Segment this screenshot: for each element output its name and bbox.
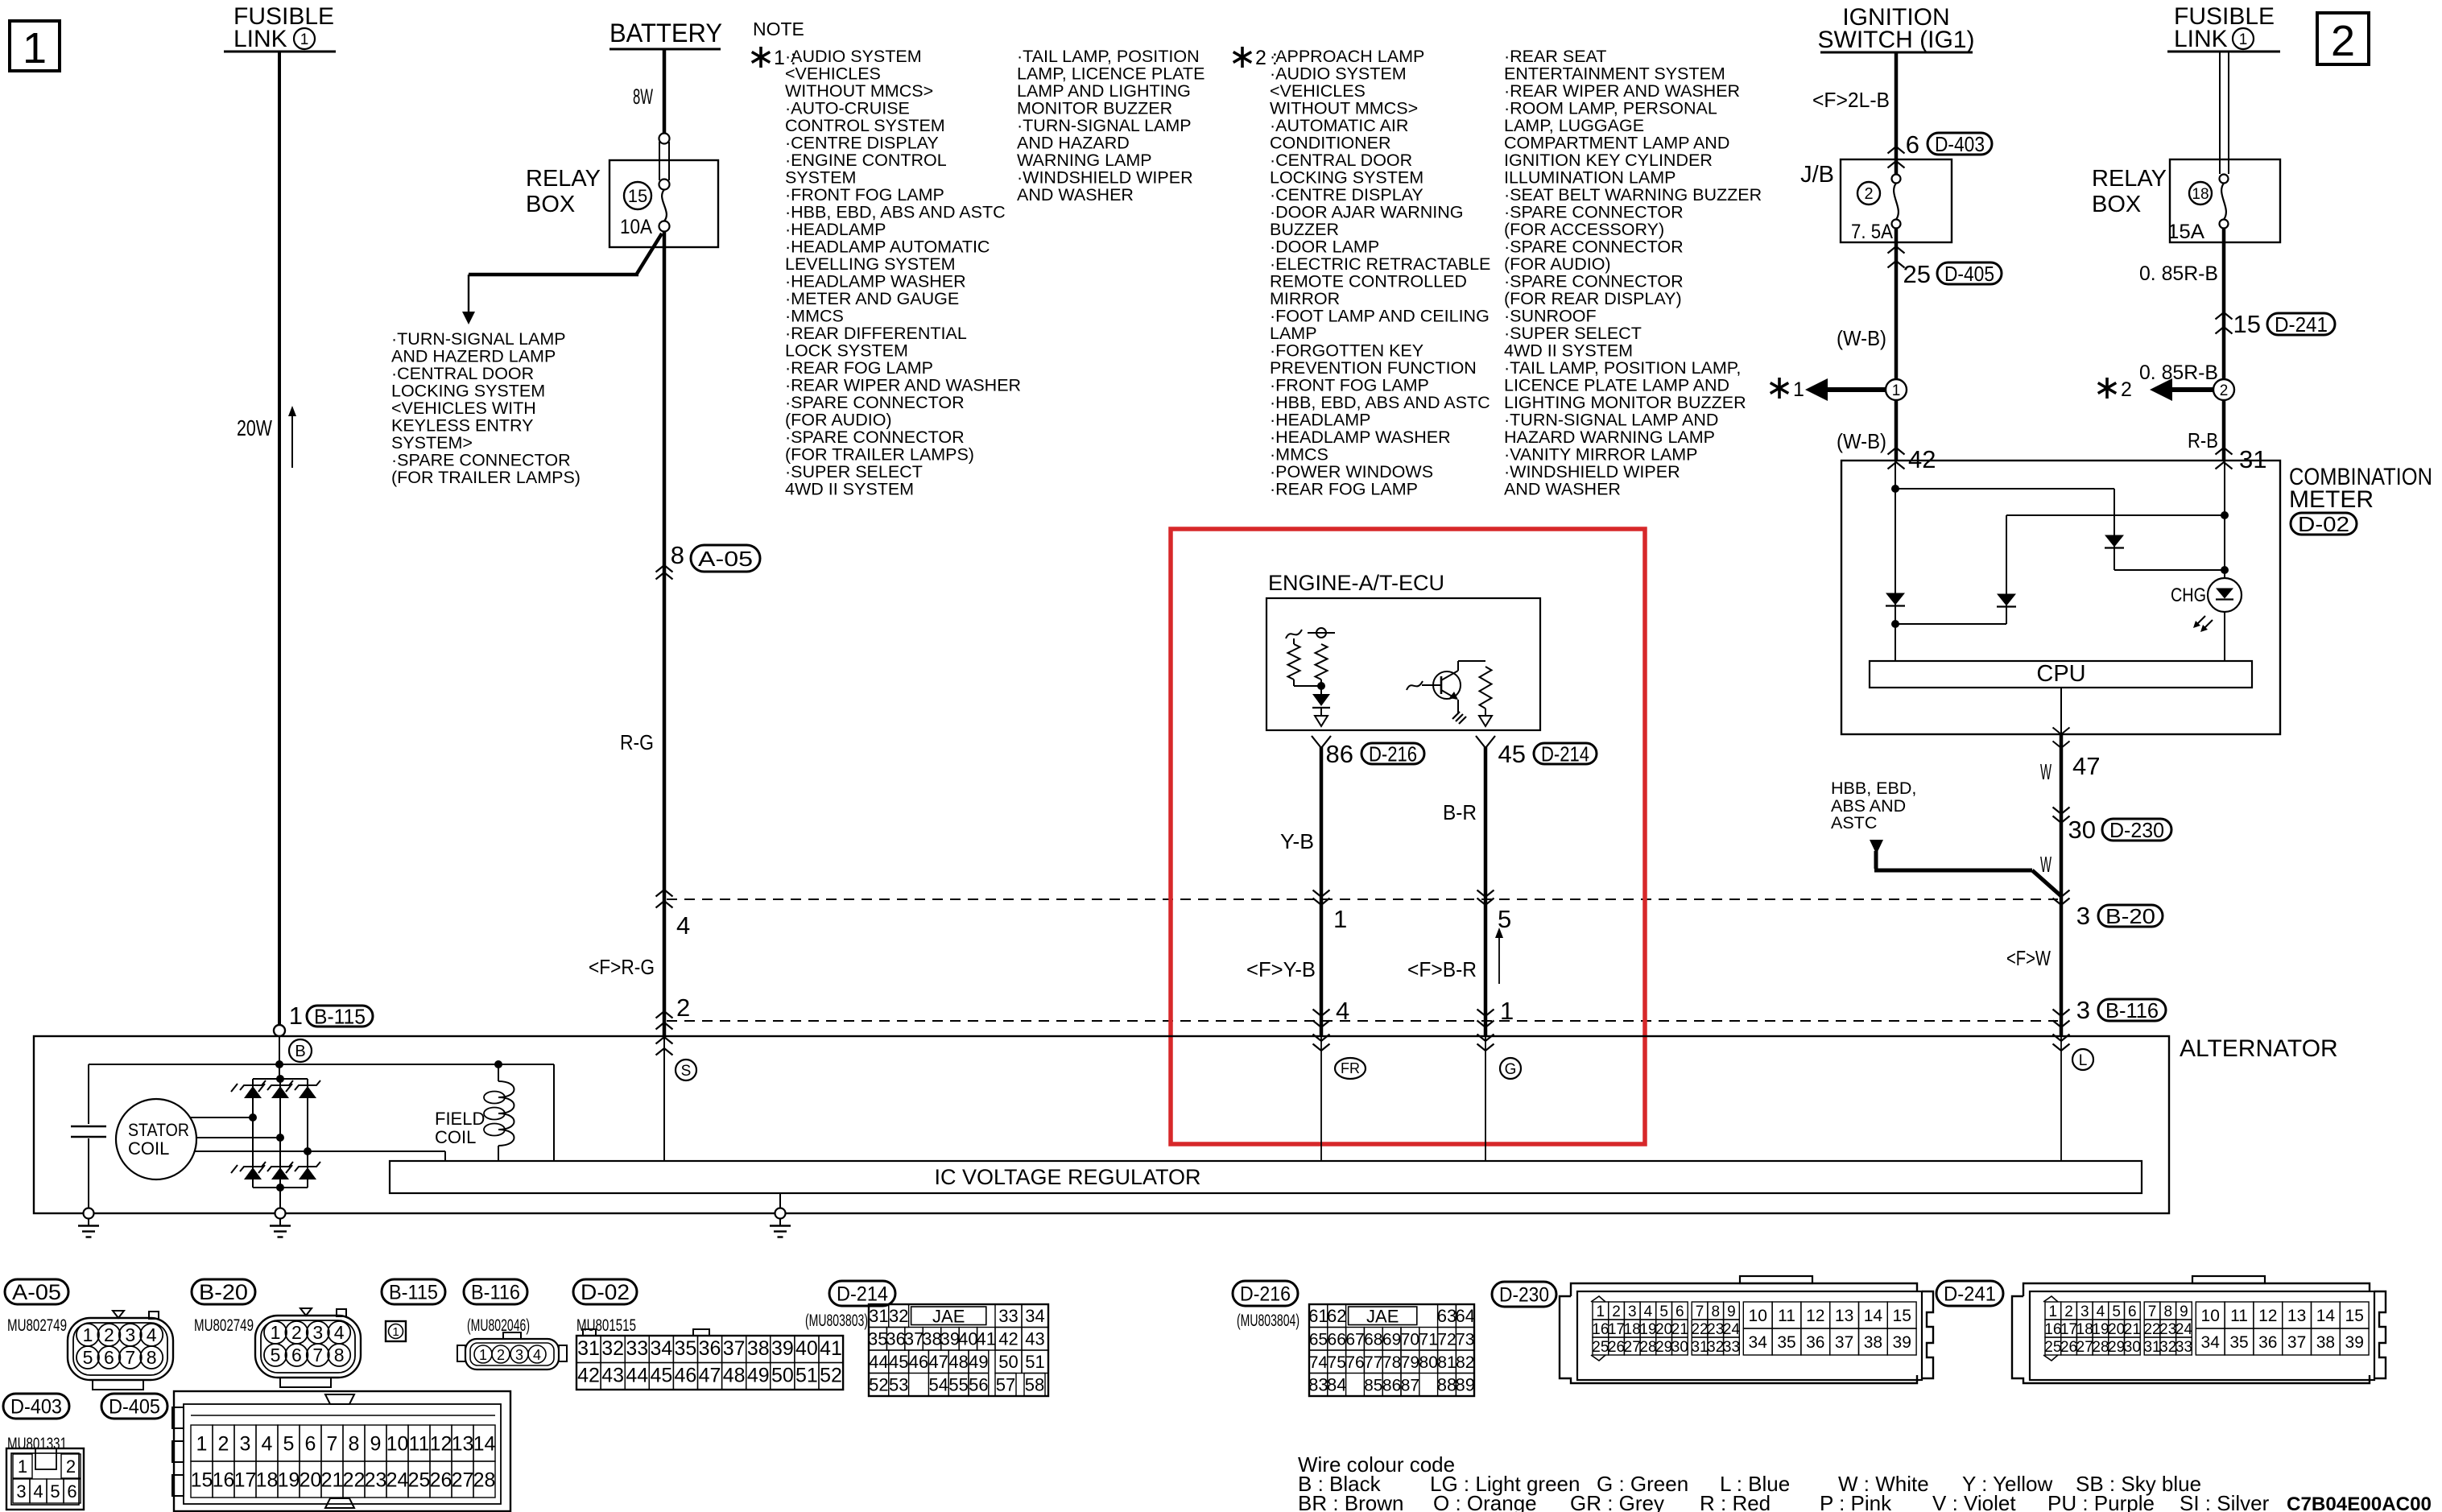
svg-text:·POWER WINDOWS: ·POWER WINDOWS <box>1270 462 1433 481</box>
svg-text:22: 22 <box>343 1469 366 1492</box>
svg-text:·WINDSHIELD WIPER: ·WINDSHIELD WIPER <box>1017 168 1193 188</box>
svg-text:35: 35 <box>2229 1333 2248 1352</box>
svg-text:42: 42 <box>998 1329 1018 1349</box>
svg-text:1: 1 <box>83 1324 93 1345</box>
svg-text:(FOR AUDIO): (FOR AUDIO) <box>785 411 892 430</box>
svg-text:1: 1 <box>1793 378 1804 401</box>
svg-text:41: 41 <box>977 1329 996 1349</box>
svg-text:34: 34 <box>650 1337 672 1360</box>
svg-text:37: 37 <box>723 1337 746 1360</box>
svg-text:·TAIL LAMP, POSITION: ·TAIL LAMP, POSITION <box>1017 47 1200 66</box>
svg-text:·METER AND GAUGE: ·METER AND GAUGE <box>785 289 959 308</box>
svg-text:·REAR WIPER AND WASHER: ·REAR WIPER AND WASHER <box>1504 81 1740 101</box>
svg-text:47: 47 <box>2072 752 2100 780</box>
svg-text:·ENGINE CONTROL: ·ENGINE CONTROL <box>785 151 947 170</box>
svg-text:7: 7 <box>1696 1303 1704 1320</box>
svg-text:<VEHICLES: <VEHICLES <box>785 64 881 84</box>
svg-text:50: 50 <box>998 1352 1018 1372</box>
svg-text:CONDITIONER: CONDITIONER <box>1270 134 1391 153</box>
svg-text:REMOTE CONTROLLED: REMOTE CONTROLLED <box>1270 272 1467 291</box>
svg-text:4: 4 <box>147 1324 157 1345</box>
svg-text:4WD II SYSTEM: 4WD II SYSTEM <box>1504 341 1633 361</box>
svg-text:<F>2L-B: <F>2L-B <box>1812 88 1890 112</box>
svg-text:·TAIL LAMP, POSITION LAMP,: ·TAIL LAMP, POSITION LAMP, <box>1504 358 1741 378</box>
svg-text:D-230: D-230 <box>1499 1284 1549 1307</box>
svg-text:1: 1 <box>23 24 47 72</box>
svg-text:36: 36 <box>1806 1333 1824 1352</box>
svg-text:21: 21 <box>2124 1321 2141 1338</box>
svg-text:·SUPER SELECT: ·SUPER SELECT <box>1504 324 1642 343</box>
svg-text:D-216: D-216 <box>1369 742 1417 766</box>
svg-text:54: 54 <box>929 1375 948 1395</box>
svg-text:63: 63 <box>1437 1306 1457 1326</box>
svg-text:31: 31 <box>869 1306 888 1326</box>
svg-text:LINK: LINK <box>233 26 287 52</box>
svg-text:3: 3 <box>125 1324 135 1345</box>
svg-text:30: 30 <box>2068 816 2096 844</box>
svg-text:G: G <box>1505 1061 1517 1078</box>
svg-text:LAMP: LAMP <box>1270 324 1317 343</box>
svg-text:71: 71 <box>1419 1330 1438 1349</box>
svg-text:·WINDSHIELD WIPER: ·WINDSHIELD WIPER <box>1504 462 1680 481</box>
svg-text:·SUPER SELECT: ·SUPER SELECT <box>785 462 923 481</box>
svg-text:NOTE: NOTE <box>753 19 804 39</box>
svg-text:27: 27 <box>452 1469 474 1492</box>
svg-text:·SPARE CONNECTOR: ·SPARE CONNECTOR <box>1504 238 1684 257</box>
svg-text:39: 39 <box>1893 1333 1911 1352</box>
svg-text:D-230: D-230 <box>2109 818 2164 842</box>
svg-text:0. 85R-B: 0. 85R-B <box>2139 262 2218 285</box>
svg-text:LIGHTING MONITOR BUZZER: LIGHTING MONITOR BUZZER <box>1504 393 1746 412</box>
svg-text:2: 2 <box>218 1433 229 1456</box>
svg-text:·FOOT LAMP AND CEILING: ·FOOT LAMP AND CEILING <box>1270 307 1490 326</box>
svg-text:W: W <box>2040 852 2052 877</box>
svg-text:MONITOR BUZZER: MONITOR BUZZER <box>1017 99 1172 118</box>
svg-text:5: 5 <box>283 1433 295 1456</box>
svg-text:MIRROR: MIRROR <box>1270 289 1340 308</box>
svg-text:BR : Brown: BR : Brown <box>1298 1491 1404 1512</box>
svg-text:2: 2 <box>2121 378 2132 401</box>
svg-text:72: 72 <box>1437 1330 1456 1349</box>
svg-text:COIL: COIL <box>435 1127 476 1147</box>
svg-text:31: 31 <box>577 1337 600 1360</box>
svg-text:12: 12 <box>2258 1307 2277 1325</box>
svg-text:AND HAZARD: AND HAZARD <box>1017 134 1130 153</box>
svg-text:34: 34 <box>1749 1333 1768 1352</box>
svg-text:SYSTEM>: SYSTEM> <box>391 433 473 452</box>
svg-text:WITHOUT MMCS>: WITHOUT MMCS> <box>1270 99 1418 118</box>
svg-text:10: 10 <box>2201 1307 2220 1325</box>
svg-text:44: 44 <box>869 1352 888 1372</box>
svg-text:19: 19 <box>278 1469 300 1492</box>
svg-text:<F>B-R: <F>B-R <box>1407 957 1477 981</box>
svg-text:17: 17 <box>1608 1321 1625 1338</box>
svg-text:23: 23 <box>1707 1321 1724 1338</box>
svg-text:D-405: D-405 <box>109 1396 160 1419</box>
svg-text:1: 1 <box>300 31 309 48</box>
svg-text:34: 34 <box>1025 1306 1044 1326</box>
svg-text:47: 47 <box>929 1352 948 1372</box>
svg-text:55: 55 <box>948 1375 968 1395</box>
svg-text:22: 22 <box>2143 1321 2160 1338</box>
svg-text:6: 6 <box>1906 130 1919 159</box>
svg-text:B-116: B-116 <box>2105 998 2159 1022</box>
svg-text:20: 20 <box>300 1469 322 1492</box>
svg-text:WITHOUT MMCS>: WITHOUT MMCS> <box>785 81 933 101</box>
svg-text:<F>W: <F>W <box>2006 946 2051 970</box>
svg-text:47: 47 <box>699 1365 721 1387</box>
svg-text:MU801515: MU801515 <box>576 1316 636 1335</box>
svg-text:8: 8 <box>334 1345 345 1365</box>
svg-text:LAMP AND LIGHTING: LAMP AND LIGHTING <box>1017 81 1191 101</box>
svg-text:CONTROL SYSTEM: CONTROL SYSTEM <box>785 116 945 135</box>
svg-text:46: 46 <box>675 1365 697 1387</box>
svg-text:·HEADLAMP AUTOMATIC: ·HEADLAMP AUTOMATIC <box>785 238 990 257</box>
svg-text:30: 30 <box>2124 1339 2141 1356</box>
svg-text:58: 58 <box>1025 1375 1044 1395</box>
svg-text:13: 13 <box>2287 1307 2306 1325</box>
svg-text:RELAY: RELAY <box>2092 166 2167 192</box>
svg-text:16: 16 <box>1592 1321 1609 1338</box>
svg-text:45: 45 <box>889 1352 908 1372</box>
svg-text:3: 3 <box>1628 1303 1637 1320</box>
svg-text:20W: 20W <box>237 415 272 440</box>
svg-text:B-115: B-115 <box>314 1004 366 1028</box>
svg-text:1: 1 <box>1333 905 1347 933</box>
svg-text:16: 16 <box>213 1469 235 1492</box>
svg-text:(FOR ACCESSORY): (FOR ACCESSORY) <box>1504 220 1664 239</box>
svg-text:45: 45 <box>1498 740 1526 768</box>
svg-text:87: 87 <box>1401 1376 1419 1394</box>
svg-text:32: 32 <box>2159 1339 2176 1356</box>
svg-text:R-G: R-G <box>620 730 654 754</box>
svg-text:34: 34 <box>2201 1333 2221 1352</box>
svg-text:2: 2 <box>2331 17 2355 65</box>
svg-text:20: 20 <box>1655 1321 1672 1338</box>
svg-text:32: 32 <box>1707 1339 1724 1356</box>
svg-text:FR: FR <box>1341 1060 1360 1076</box>
svg-text:75: 75 <box>1328 1353 1346 1372</box>
svg-text:LICENCE PLATE LAMP AND: LICENCE PLATE LAMP AND <box>1504 376 1729 395</box>
svg-text:JAE: JAE <box>932 1306 965 1326</box>
svg-text:IGNITION KEY CYLINDER: IGNITION KEY CYLINDER <box>1504 151 1713 170</box>
svg-text:2: 2 <box>66 1456 76 1477</box>
svg-text:15: 15 <box>1893 1307 1911 1325</box>
svg-text:BOX: BOX <box>526 192 575 217</box>
svg-text:33: 33 <box>626 1337 648 1360</box>
svg-text:33: 33 <box>1723 1339 1740 1356</box>
svg-text:17: 17 <box>2060 1321 2077 1338</box>
svg-text:<VEHICLES WITH: <VEHICLES WITH <box>391 399 536 418</box>
svg-text:LEVELLING SYSTEM: LEVELLING SYSTEM <box>785 254 956 274</box>
svg-text:·CENTRE DISPLAY: ·CENTRE DISPLAY <box>1270 185 1423 204</box>
svg-text:4: 4 <box>2097 1303 2105 1320</box>
svg-text:·HEADLAMP WASHER: ·HEADLAMP WASHER <box>1270 428 1451 447</box>
svg-text:8W: 8W <box>633 85 653 109</box>
svg-text:14: 14 <box>2316 1307 2336 1325</box>
svg-text:1: 1 <box>18 1456 27 1477</box>
svg-text:ASTC: ASTC <box>1831 813 1877 832</box>
svg-text:A-05: A-05 <box>12 1280 61 1304</box>
svg-text:9: 9 <box>370 1433 382 1456</box>
svg-text:80: 80 <box>1419 1353 1438 1372</box>
svg-text:38: 38 <box>747 1337 770 1360</box>
svg-text:V : Violet: V : Violet <box>1932 1491 2016 1512</box>
svg-text:·SPARE CONNECTOR: ·SPARE CONNECTOR <box>1504 272 1684 291</box>
svg-text:4: 4 <box>676 911 690 940</box>
svg-text:·FRONT FOG LAMP: ·FRONT FOG LAMP <box>1270 376 1429 395</box>
svg-text:88: 88 <box>1437 1375 1457 1395</box>
svg-text:AND WASHER: AND WASHER <box>1504 480 1621 499</box>
svg-text:35: 35 <box>868 1329 887 1349</box>
svg-text:27: 27 <box>2076 1339 2093 1356</box>
svg-text:1: 1 <box>271 1322 281 1343</box>
svg-text:24: 24 <box>2175 1321 2193 1338</box>
svg-text:15: 15 <box>191 1469 213 1492</box>
svg-text:73: 73 <box>1456 1330 1474 1349</box>
svg-text:8: 8 <box>2163 1303 2172 1320</box>
svg-text:6: 6 <box>2128 1303 2137 1320</box>
svg-text:25: 25 <box>408 1469 431 1492</box>
svg-text:LAMP, LUGGAGE: LAMP, LUGGAGE <box>1504 116 1644 135</box>
svg-text:7: 7 <box>327 1433 338 1456</box>
svg-text:(MU803803): (MU803803) <box>805 1312 868 1330</box>
svg-text:26: 26 <box>2060 1339 2077 1356</box>
svg-text:76: 76 <box>1345 1353 1364 1372</box>
svg-text:38: 38 <box>922 1329 941 1349</box>
svg-text:<F>R-G: <F>R-G <box>589 955 655 979</box>
svg-text:CHG: CHG <box>2171 585 2206 606</box>
svg-text:21: 21 <box>321 1469 344 1492</box>
svg-text:20: 20 <box>2108 1321 2125 1338</box>
svg-text:7. 5A: 7. 5A <box>1851 221 1893 243</box>
svg-text:·ELECTRIC RETRACTABLE: ·ELECTRIC RETRACTABLE <box>1270 254 1490 274</box>
svg-text:18: 18 <box>2192 186 2209 203</box>
svg-text:AND HAZERD LAMP: AND HAZERD LAMP <box>391 347 556 366</box>
svg-text:LAMP, LICENCE PLATE: LAMP, LICENCE PLATE <box>1017 64 1204 84</box>
svg-text:·APPROACH LAMP: ·APPROACH LAMP <box>1270 47 1424 66</box>
svg-text:39: 39 <box>771 1337 794 1360</box>
svg-text:·REAR FOG LAMP: ·REAR FOG LAMP <box>785 358 933 378</box>
svg-text:·REAR WIPER AND WASHER: ·REAR WIPER AND WASHER <box>785 376 1021 395</box>
svg-text:13: 13 <box>452 1433 474 1456</box>
svg-text:78: 78 <box>1382 1353 1401 1372</box>
svg-text:35: 35 <box>1777 1333 1795 1352</box>
svg-text:·SUNROOF: ·SUNROOF <box>1504 307 1597 326</box>
svg-text:·FRONT FOG LAMP: ·FRONT FOG LAMP <box>785 185 944 204</box>
svg-text:11: 11 <box>1778 1307 1795 1325</box>
svg-text:23: 23 <box>2159 1321 2176 1338</box>
svg-text:MU802749: MU802749 <box>194 1316 254 1335</box>
svg-text:18: 18 <box>2076 1321 2093 1338</box>
svg-text:7: 7 <box>2148 1303 2157 1320</box>
svg-text:B: B <box>295 1043 305 1060</box>
svg-text:29: 29 <box>2108 1339 2125 1356</box>
svg-text:45: 45 <box>650 1365 672 1387</box>
svg-text:A-05: A-05 <box>698 547 753 571</box>
svg-text:79: 79 <box>1401 1353 1419 1372</box>
svg-text:·DOOR AJAR WARNING: ·DOOR AJAR WARNING <box>1270 203 1464 222</box>
svg-text:·TURN-SIGNAL LAMP: ·TURN-SIGNAL LAMP <box>1017 116 1192 135</box>
svg-text:44: 44 <box>626 1365 648 1387</box>
svg-text:·CENTRE DISPLAY: ·CENTRE DISPLAY <box>785 134 939 153</box>
svg-text:49: 49 <box>969 1352 988 1372</box>
svg-text:S: S <box>681 1063 692 1080</box>
svg-text:29: 29 <box>1655 1339 1672 1356</box>
svg-text:JAE: JAE <box>1366 1306 1399 1326</box>
svg-text:HBB, EBD,: HBB, EBD, <box>1831 779 1916 798</box>
svg-text:25: 25 <box>1592 1339 1609 1356</box>
svg-text:6: 6 <box>67 1481 76 1502</box>
svg-text:O : Orange: O : Orange <box>1433 1491 1537 1512</box>
svg-text:84: 84 <box>1327 1375 1346 1395</box>
svg-text:5: 5 <box>2112 1303 2121 1320</box>
svg-text:32: 32 <box>601 1337 624 1360</box>
svg-text:LOCK SYSTEM: LOCK SYSTEM <box>785 341 908 361</box>
svg-text:R-B: R-B <box>2188 428 2218 452</box>
svg-text:2: 2 <box>2220 382 2229 399</box>
svg-text:4: 4 <box>1336 997 1349 1025</box>
svg-text:1: 1 <box>2049 1303 2058 1320</box>
svg-text:·CENTRAL DOOR: ·CENTRAL DOOR <box>391 364 534 383</box>
svg-text:<F>Y-B: <F>Y-B <box>1246 957 1316 981</box>
svg-text:25: 25 <box>2044 1339 2061 1356</box>
svg-text:·TURN-SIGNAL LAMP: ·TURN-SIGNAL LAMP <box>391 329 566 349</box>
svg-text:(W-B): (W-B) <box>1837 326 1886 350</box>
svg-text:36: 36 <box>2258 1333 2277 1352</box>
svg-text:31: 31 <box>2143 1339 2160 1356</box>
svg-text:74: 74 <box>1309 1353 1328 1372</box>
svg-text:57: 57 <box>996 1375 1015 1395</box>
svg-text:22: 22 <box>1691 1321 1708 1338</box>
svg-text:7: 7 <box>125 1347 135 1368</box>
svg-text:METER: METER <box>2289 486 2374 513</box>
svg-text:3: 3 <box>2076 902 2090 930</box>
svg-text:40: 40 <box>958 1329 977 1349</box>
svg-text:28: 28 <box>1639 1339 1656 1356</box>
svg-text:69: 69 <box>1382 1330 1401 1349</box>
svg-text:SWITCH (IG1): SWITCH (IG1) <box>1818 27 1975 53</box>
svg-text:83: 83 <box>1308 1375 1328 1395</box>
svg-text:2: 2 <box>2064 1303 2073 1320</box>
svg-text:33: 33 <box>2175 1339 2192 1356</box>
svg-text:49: 49 <box>747 1365 770 1387</box>
svg-text:·CENTRAL DOOR: ·CENTRAL DOOR <box>1270 151 1412 170</box>
svg-text:·FORGOTTEN KEY: ·FORGOTTEN KEY <box>1270 341 1423 361</box>
svg-text:77: 77 <box>1364 1353 1382 1372</box>
svg-text:31: 31 <box>2239 445 2266 473</box>
svg-text:SYSTEM: SYSTEM <box>785 168 856 188</box>
svg-text:6: 6 <box>104 1347 114 1368</box>
svg-text:25: 25 <box>1903 260 1931 288</box>
svg-text:0. 85R-B: 0. 85R-B <box>2139 361 2218 384</box>
svg-text:KEYLESS ENTRY: KEYLESS ENTRY <box>391 416 533 436</box>
svg-text:36: 36 <box>886 1329 905 1349</box>
svg-text:8: 8 <box>671 541 684 569</box>
svg-text:19: 19 <box>1639 1321 1656 1338</box>
svg-text:(FOR TRAILER LAMPS): (FOR TRAILER LAMPS) <box>391 468 581 487</box>
svg-text:D-02: D-02 <box>581 1280 630 1304</box>
svg-text:9: 9 <box>2180 1303 2188 1320</box>
svg-text:15: 15 <box>2233 310 2261 338</box>
svg-text:85: 85 <box>1364 1376 1382 1394</box>
svg-text:46: 46 <box>909 1352 928 1372</box>
svg-text:B-R: B-R <box>1443 800 1477 824</box>
svg-text:CPU: CPU <box>2036 661 2085 687</box>
svg-text:P : Pink: P : Pink <box>1820 1491 1892 1512</box>
svg-text:D-214: D-214 <box>1541 742 1589 766</box>
svg-text:RELAY: RELAY <box>526 166 601 192</box>
svg-text:<VEHICLES: <VEHICLES <box>1270 81 1366 101</box>
svg-text:GR : Grey: GR : Grey <box>1570 1491 1664 1512</box>
svg-text:15: 15 <box>2345 1307 2364 1325</box>
svg-text:AND WASHER: AND WASHER <box>1017 185 1134 204</box>
svg-text:56: 56 <box>969 1375 988 1395</box>
svg-text:J/B: J/B <box>1800 162 1834 188</box>
svg-text:·HEADLAMP: ·HEADLAMP <box>785 220 886 239</box>
svg-text:18: 18 <box>256 1469 279 1492</box>
svg-text:40: 40 <box>795 1337 818 1360</box>
svg-text:32: 32 <box>889 1306 908 1326</box>
svg-text:4: 4 <box>262 1433 273 1456</box>
svg-text:5: 5 <box>50 1481 60 1502</box>
svg-text:W: W <box>2040 759 2052 784</box>
svg-text:D-214: D-214 <box>837 1283 888 1306</box>
svg-text:·REAR SEAT: ·REAR SEAT <box>1504 47 1606 66</box>
svg-text:COMPARTMENT LAMP AND: COMPARTMENT LAMP AND <box>1504 134 1729 153</box>
svg-text:52: 52 <box>820 1365 842 1387</box>
svg-text:39: 39 <box>940 1329 960 1349</box>
svg-text:11: 11 <box>2230 1307 2248 1325</box>
svg-text:LINK: LINK <box>2174 26 2228 52</box>
svg-text:48: 48 <box>723 1365 746 1387</box>
svg-text:PU : Purple: PU : Purple <box>2047 1491 2155 1512</box>
svg-text:1: 1 <box>1500 997 1514 1025</box>
svg-text:·SPARE CONNECTOR: ·SPARE CONNECTOR <box>785 428 965 447</box>
svg-text:6: 6 <box>1676 1303 1684 1320</box>
svg-text:48: 48 <box>948 1352 968 1372</box>
svg-text:4: 4 <box>533 1347 541 1363</box>
svg-text:6: 6 <box>305 1433 316 1456</box>
svg-text:D-403: D-403 <box>10 1396 62 1419</box>
svg-text:·AUDIO SYSTEM: ·AUDIO SYSTEM <box>785 47 922 66</box>
svg-text:BUZZER: BUZZER <box>1270 220 1339 239</box>
svg-text:(W-B): (W-B) <box>1837 429 1886 453</box>
svg-text:2: 2 <box>497 1347 505 1363</box>
svg-text:37: 37 <box>1835 1333 1853 1352</box>
svg-text:61: 61 <box>1308 1306 1328 1326</box>
svg-text:15: 15 <box>628 186 647 206</box>
svg-text:ALTERNATOR: ALTERNATOR <box>2180 1035 2338 1062</box>
svg-text:43: 43 <box>1025 1329 1044 1349</box>
svg-text:37: 37 <box>904 1329 923 1349</box>
svg-text:26: 26 <box>430 1469 452 1492</box>
svg-text:·SEAT BELT WARNING BUZZER: ·SEAT BELT WARNING BUZZER <box>1504 185 1762 204</box>
svg-text:42: 42 <box>577 1365 600 1387</box>
svg-text:28: 28 <box>2092 1339 2109 1356</box>
svg-text:C7B04E00AC00: C7B04E00AC00 <box>2287 1493 2432 1512</box>
svg-text:B-116: B-116 <box>471 1282 520 1304</box>
svg-text:MU802749: MU802749 <box>7 1316 67 1335</box>
svg-text:19: 19 <box>2092 1321 2109 1338</box>
svg-text:8: 8 <box>1711 1303 1720 1320</box>
svg-text:12: 12 <box>430 1433 452 1456</box>
svg-text:4WD II SYSTEM: 4WD II SYSTEM <box>785 480 914 499</box>
svg-text:·TURN-SIGNAL LAMP AND: ·TURN-SIGNAL LAMP AND <box>1504 411 1718 430</box>
svg-text:D-216: D-216 <box>1240 1283 1291 1306</box>
svg-text:64: 64 <box>1456 1306 1475 1326</box>
svg-text:·DOOR LAMP: ·DOOR LAMP <box>1270 238 1379 257</box>
